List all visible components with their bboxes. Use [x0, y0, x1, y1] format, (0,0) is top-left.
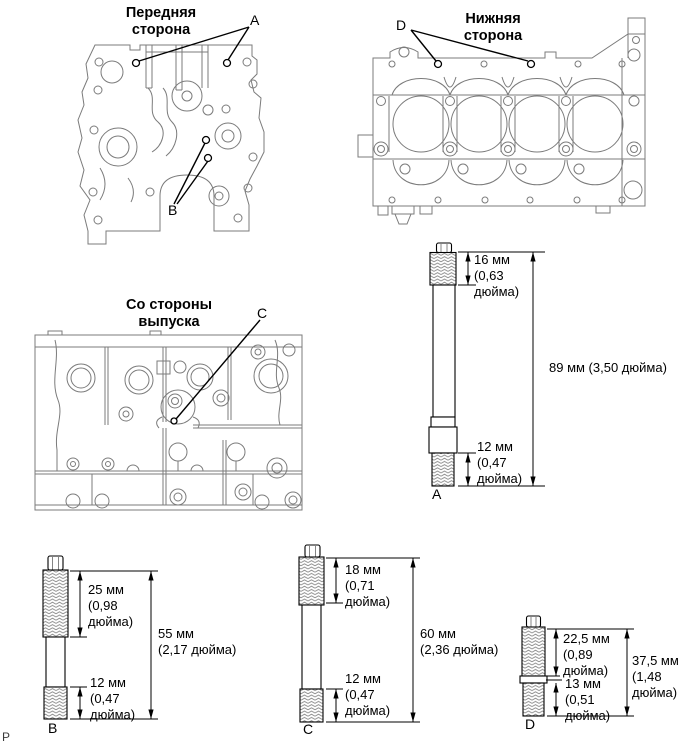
- stud-c-label: C: [303, 721, 313, 737]
- stud-c-shank: [302, 605, 321, 689]
- stud-a-bottom-dimension: 12 мм(0,47дюйма): [477, 439, 522, 487]
- stud-b-top-dimension: 25 мм(0,98дюйма): [88, 582, 133, 630]
- stud-hole-d1: [435, 61, 442, 68]
- stud-d-label: D: [525, 716, 535, 732]
- stud-c-bottom-dimension: 12 мм(0,47дюйма): [345, 671, 390, 719]
- stud-b-total-dimension: 55 мм(2,17 дюйма): [158, 626, 236, 658]
- stud-d-bottom-threads: [523, 683, 544, 716]
- stud-d-collar: [520, 676, 547, 683]
- deck-bolt-holes: [389, 61, 625, 203]
- stud-a-label: A: [432, 486, 441, 502]
- callout-label-c: C: [257, 305, 267, 321]
- stud-hole-b1: [203, 137, 210, 144]
- stud-a-top-dimension: 16 мм(0,63дюйма): [474, 252, 519, 300]
- stud-c-top-threads: [299, 557, 324, 605]
- page-corner-marker: P: [2, 730, 10, 744]
- bottom-block-outline: [373, 18, 645, 206]
- stud-b-bottom-dimension: 12 мм(0,47дюйма): [90, 675, 135, 723]
- bottom-view-title: Нижняя сторона: [433, 11, 553, 45]
- bearing-webs: [374, 37, 642, 200]
- stud-b-label: B: [48, 720, 57, 736]
- stud-hole-a1: [133, 60, 140, 67]
- bottom-view-drawing: [358, 18, 645, 224]
- stud-c-top-dimension: 18 мм(0,71дюйма): [345, 562, 390, 610]
- stud-b-bottom-threads: [44, 687, 67, 719]
- stud-a-tip: [437, 243, 452, 253]
- stud-a-drawing: [429, 243, 457, 486]
- stud-hole-d2: [528, 61, 535, 68]
- callout-label-b: B: [168, 202, 177, 218]
- front-view-title: Передняя сторона: [101, 5, 221, 39]
- core-plugs: [67, 359, 288, 394]
- stud-c-tip: [305, 545, 320, 557]
- exhaust-view-drawing: [35, 320, 302, 510]
- stud-a-bottom-threads: [432, 453, 454, 486]
- cylinder-bores: [393, 96, 623, 152]
- stud-a-top-threads: [430, 253, 456, 286]
- manual-page: Передняя сторона Нижняя сторона Со сторо…: [0, 0, 691, 748]
- stud-d-top-dimension: 22,5 мм(0,89дюйма): [563, 631, 610, 679]
- stud-b-drawing: [43, 556, 68, 719]
- leader-lines-b: [174, 143, 208, 204]
- stud-hole-a2: [224, 60, 231, 67]
- stud-d-mid-dimension: 13 мм(0,51дюйма): [565, 676, 610, 724]
- stud-hole-b2: [205, 155, 212, 162]
- exhaust-bolt-bosses: [67, 443, 287, 478]
- stud-b-shank: [46, 637, 65, 687]
- exhaust-view-title: Со стороны выпуска: [109, 297, 229, 331]
- stud-c-bottom-threads: [300, 689, 323, 722]
- stud-a-shank: [433, 285, 455, 417]
- stud-d-total-dimension: 37,5 мм(1,48дюйма): [632, 653, 679, 701]
- stud-c-total-dimension: 60 мм(2,36 дюйма): [420, 626, 498, 658]
- stud-b-top-threads: [43, 570, 68, 637]
- callout-label-a: A: [250, 12, 259, 28]
- stud-b-tip: [48, 556, 63, 570]
- stud-c-drawing: [299, 545, 324, 722]
- stud-d-drawing: [520, 616, 547, 716]
- stud-d-top-threads: [522, 627, 545, 676]
- stud-a-total-dimension: 89 мм (3,50 дюйма): [549, 360, 667, 376]
- callout-label-d: D: [396, 17, 406, 33]
- stud-a-collar: [429, 427, 457, 453]
- stud-d-tip: [527, 616, 541, 627]
